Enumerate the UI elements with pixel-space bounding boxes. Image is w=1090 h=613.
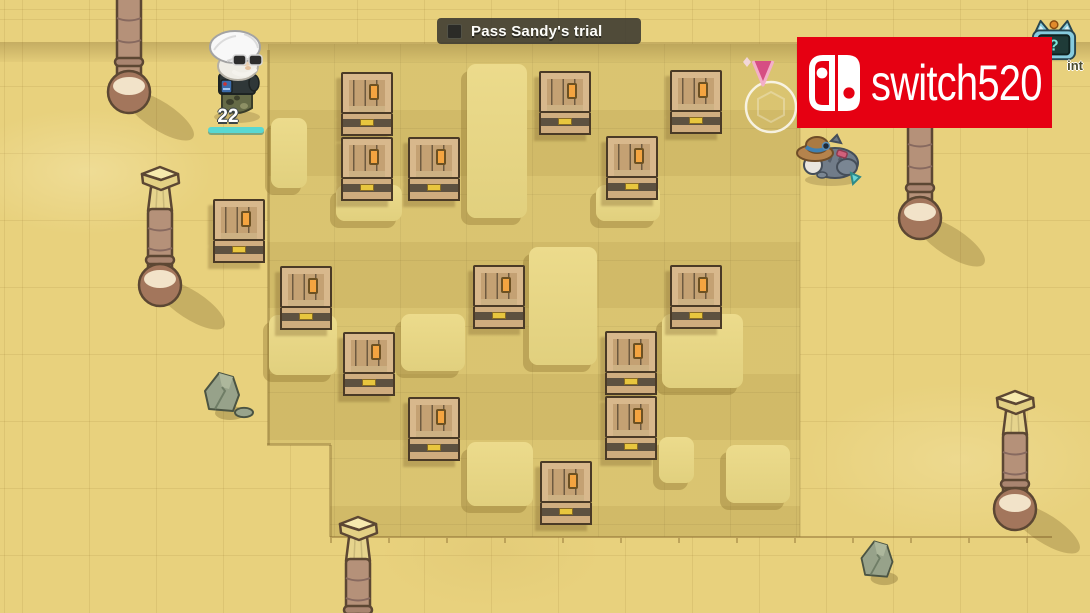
wooden-crate xyxy=(341,137,393,201)
sand-mound xyxy=(529,247,597,365)
sunglasses xyxy=(233,55,246,65)
player-health-bar xyxy=(208,127,264,133)
crate-latch xyxy=(308,278,318,294)
crate-latch xyxy=(633,408,643,424)
quest-objective-label: Pass Sandy's trial xyxy=(471,23,602,40)
quest-pointer-arrow xyxy=(741,53,777,96)
crate-top-face xyxy=(605,331,657,373)
sand-mound xyxy=(659,437,694,483)
crown-icon xyxy=(1050,21,1058,29)
wooden-crate xyxy=(605,331,657,395)
watermark-text: switch520 xyxy=(871,54,1042,112)
crate-front-latch xyxy=(299,313,313,320)
crate-top-face xyxy=(540,461,592,503)
crate-latch xyxy=(634,148,644,164)
wooden-crate xyxy=(473,265,525,329)
stone-pillar-column xyxy=(881,122,959,242)
wooden-crate xyxy=(670,70,722,134)
crate-top-face xyxy=(539,71,591,113)
crate-front-latch xyxy=(362,379,376,386)
wooden-crate xyxy=(606,136,658,200)
crate-latch xyxy=(369,84,379,100)
switch520-watermark: switch520 xyxy=(797,37,1052,128)
crate-latch xyxy=(633,343,643,359)
crate-latch xyxy=(698,277,708,293)
crate-front-latch xyxy=(232,246,246,253)
crate-top-face xyxy=(606,136,658,178)
wooden-crate xyxy=(408,397,460,461)
sand-mound xyxy=(401,314,465,371)
npc-cat-with-hat xyxy=(795,127,863,192)
wooden-crate xyxy=(341,72,393,136)
crate-front-latch xyxy=(360,184,374,191)
teal-trinket xyxy=(851,173,860,184)
wooden-crate xyxy=(213,199,265,263)
crate-top-face xyxy=(473,265,525,307)
crate-front-latch xyxy=(624,443,638,450)
sand-mound xyxy=(467,442,533,506)
stone-pillar-hex-cap xyxy=(976,388,1054,533)
rock xyxy=(856,534,898,586)
wooden-crate xyxy=(539,71,591,135)
crate-top-face xyxy=(408,397,460,439)
crate-top-face xyxy=(408,137,460,179)
crate-front-latch xyxy=(492,312,506,319)
crate-latch xyxy=(698,82,708,98)
crate-front-latch xyxy=(360,119,374,126)
crate-top-face xyxy=(280,266,332,308)
stone-pillar-column xyxy=(90,0,168,116)
crate-latch xyxy=(369,149,379,165)
wooden-crate xyxy=(605,396,657,460)
nintendo-switch-logo-icon xyxy=(807,53,863,113)
hint-button-label: int xyxy=(1067,58,1083,73)
sparkle-icon xyxy=(743,57,751,67)
wooden-crate xyxy=(280,266,332,330)
crate-top-face xyxy=(670,70,722,112)
crate-latch xyxy=(567,83,577,99)
crate-front-latch xyxy=(558,118,572,125)
crate-top-face xyxy=(343,332,395,374)
game-viewport: 22 Pas xyxy=(0,0,1090,613)
quest-banner: Pass Sandy's trial xyxy=(437,18,641,44)
crate-latch xyxy=(436,409,446,425)
crate-front-latch xyxy=(427,444,441,451)
crate-front-latch xyxy=(427,184,441,191)
quest-checkbox-icon xyxy=(447,24,462,39)
sand-mound xyxy=(726,445,790,503)
crate-front-latch xyxy=(689,312,703,319)
crate-front-latch xyxy=(559,508,573,515)
crate-front-latch xyxy=(625,183,639,190)
crate-latch xyxy=(241,211,251,227)
crate-latch xyxy=(436,149,446,165)
stone-pillar-hex-cap xyxy=(121,164,199,309)
crate-latch xyxy=(568,473,578,489)
sand-mound xyxy=(467,64,527,218)
pebble xyxy=(233,406,255,419)
crate-latch xyxy=(371,344,381,360)
crate-top-face xyxy=(341,137,393,179)
crate-top-face xyxy=(341,72,393,114)
crate-top-face xyxy=(605,396,657,438)
crate-top-face xyxy=(670,265,722,307)
wooden-crate xyxy=(408,137,460,201)
terrain-seam-ticks xyxy=(330,538,1052,543)
wooden-crate xyxy=(540,461,592,525)
crate-front-latch xyxy=(689,117,703,124)
wooden-crate xyxy=(670,265,722,329)
crate-front-latch xyxy=(624,378,638,385)
crate-top-face xyxy=(213,199,265,241)
stone-pillar-hex-cap xyxy=(319,514,397,613)
wooden-crate xyxy=(343,332,395,396)
plaza-step-edge-horizontal xyxy=(267,443,331,446)
player-level-label: 22 xyxy=(202,106,254,128)
crate-latch xyxy=(501,277,511,293)
